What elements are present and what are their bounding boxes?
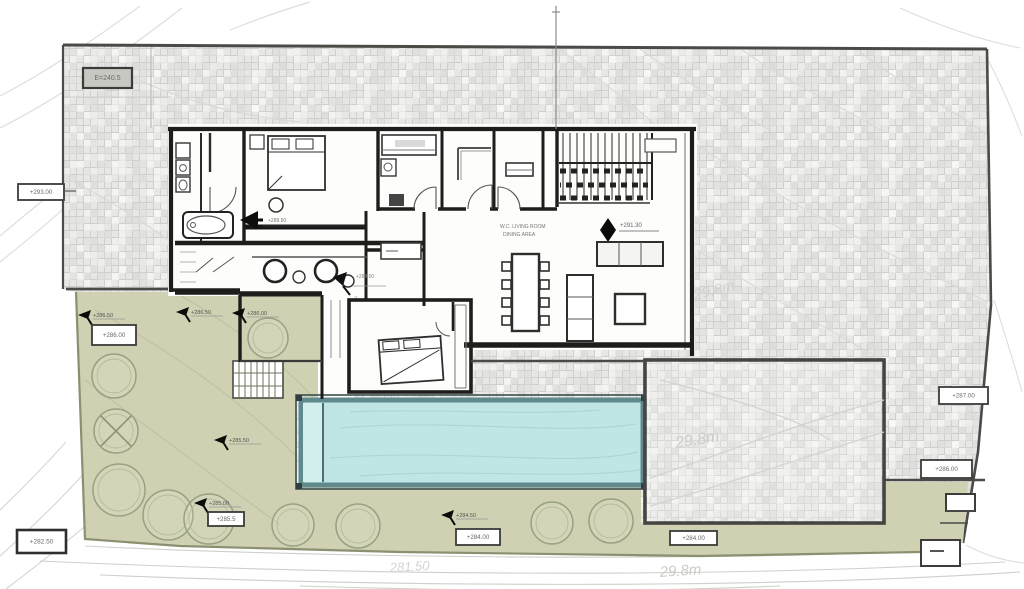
svg-text:+284.50: +284.50 bbox=[456, 513, 476, 519]
svg-text:+286.00: +286.00 bbox=[935, 466, 958, 473]
svg-text:+286.50: +286.50 bbox=[93, 313, 113, 319]
svg-text:+284.00: +284.00 bbox=[467, 534, 490, 541]
svg-text:+287.00: +287.00 bbox=[952, 393, 975, 400]
svg-text:E=240.5: E=240.5 bbox=[94, 75, 120, 82]
svg-text:+286.50: +286.50 bbox=[191, 310, 211, 316]
svg-text:+286.00: +286.00 bbox=[103, 332, 126, 339]
svg-text:281.50: 281.50 bbox=[388, 558, 430, 575]
svg-text:+285.00: +285.00 bbox=[209, 501, 229, 507]
svg-text:+293.00: +293.00 bbox=[30, 189, 53, 196]
svg-text:+284.00: +284.00 bbox=[682, 535, 705, 542]
svg-text:29.8m: 29.8m bbox=[658, 561, 702, 581]
svg-text:+286.00: +286.00 bbox=[247, 311, 267, 317]
svg-text:DINING AREA: DINING AREA bbox=[503, 232, 536, 238]
svg-text:+285.5: +285.5 bbox=[216, 516, 236, 523]
svg-text:+289.50: +289.50 bbox=[268, 218, 286, 224]
svg-text:+291.30: +291.30 bbox=[620, 223, 643, 229]
svg-text:W.C. LIVING ROOM: W.C. LIVING ROOM bbox=[500, 224, 546, 230]
svg-text:+285.50: +285.50 bbox=[229, 438, 249, 444]
svg-text:+282.50: +282.50 bbox=[30, 539, 54, 546]
svg-text:+289.00: +289.00 bbox=[356, 274, 374, 280]
